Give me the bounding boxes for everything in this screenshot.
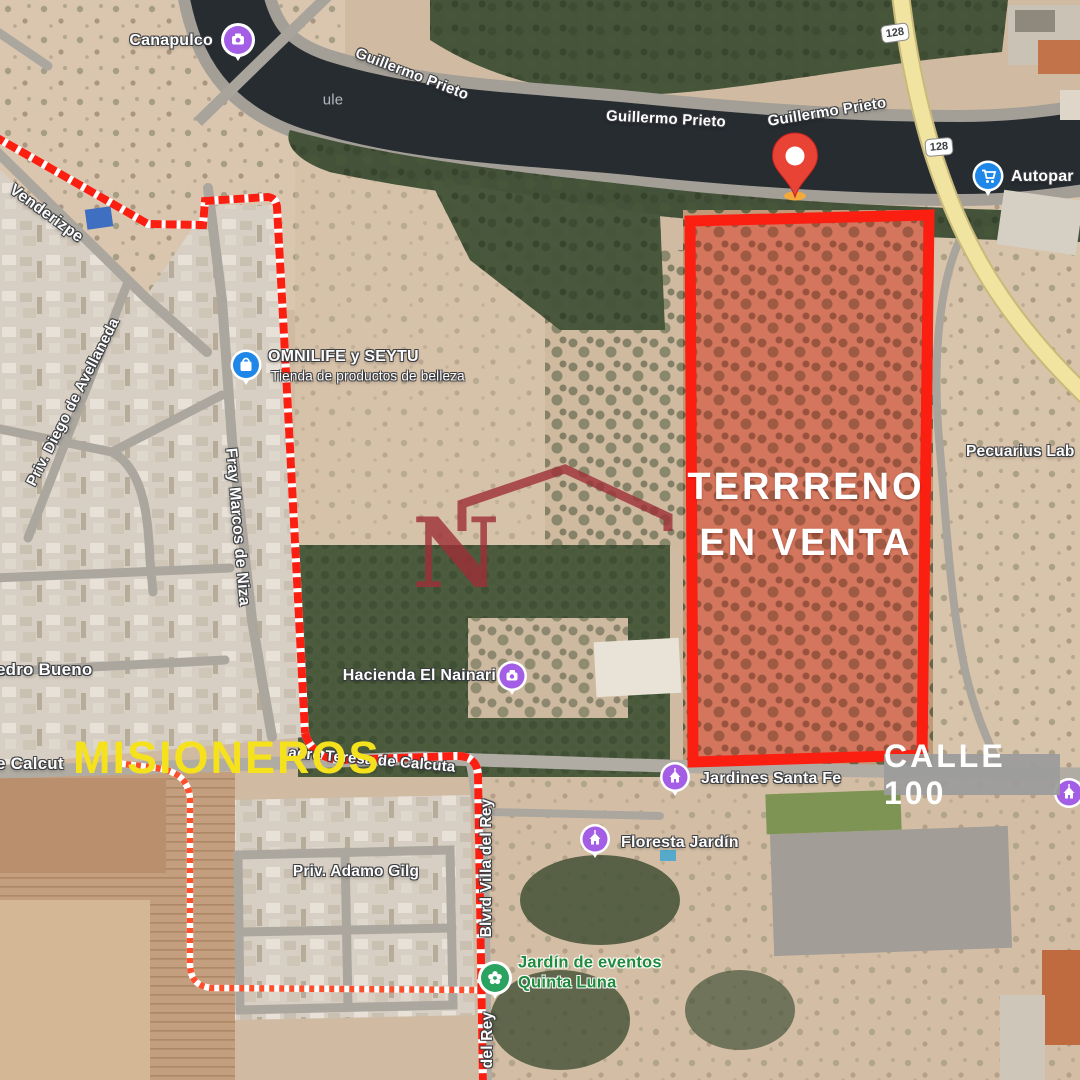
fields bbox=[0, 772, 235, 1080]
terreno-en-venta-annotation: TERRRENO EN VENTA bbox=[687, 459, 924, 571]
street-label-priv-adamo-gilg: Priv. Adamo Gilg bbox=[293, 863, 419, 881]
poi-label-floresta-jardin[interactable]: Floresta Jardín bbox=[621, 834, 739, 852]
misioneros-annotation: MISIONEROS bbox=[73, 732, 381, 784]
street-label-blvrd-villa-del-rey: Blvrd Villa del Rey bbox=[478, 799, 496, 938]
poi-label-omnilife[interactable]: OMNILIFE y SEYTU bbox=[268, 348, 419, 366]
poi-label-quinta-luna-line1[interactable]: Jardín de eventos bbox=[518, 954, 662, 973]
blue-roof-building bbox=[85, 206, 114, 229]
hacienda-building bbox=[594, 638, 682, 697]
poi-label-jardines-santa-fe[interactable]: Jardines Santa Fe bbox=[701, 770, 841, 788]
street-label-pedro-bueno: edro Bueno bbox=[0, 660, 92, 680]
highway-shield-128-south: 128 bbox=[924, 137, 953, 157]
parking-lot bbox=[770, 826, 1012, 956]
map-watermark-fragment: ule bbox=[323, 92, 344, 109]
street-label-del-rey: del Rey bbox=[479, 1012, 497, 1069]
poi-label-quinta-luna-line2[interactable]: Quinta Luna bbox=[518, 974, 616, 993]
calle-100-text: CALLE 100 bbox=[884, 738, 1060, 812]
poi-label-hacienda-el-nainari[interactable]: Hacienda El Nainari bbox=[343, 667, 496, 685]
poi-label-autopartes[interactable]: Autopar bbox=[1011, 168, 1074, 186]
terreno-line1: TERRRENO bbox=[687, 459, 924, 515]
poi-sublabel-omnilife: Tienda de productos de belleza bbox=[271, 369, 465, 384]
poi-label-canapulco[interactable]: Canapulco bbox=[129, 32, 213, 50]
calle-100-annotation: CALLE 100 bbox=[884, 754, 1060, 795]
poi-label-pecuarius[interactable]: Pecuarius Lab bbox=[966, 443, 1075, 461]
street-label-calcuta-left: e Calcut bbox=[0, 754, 64, 774]
watermark-letter: N bbox=[412, 497, 500, 610]
satellite-map: N bbox=[0, 0, 1080, 1080]
terreno-line2: EN VENTA bbox=[687, 515, 924, 571]
highway-shield-128-north: 128 bbox=[880, 22, 910, 44]
